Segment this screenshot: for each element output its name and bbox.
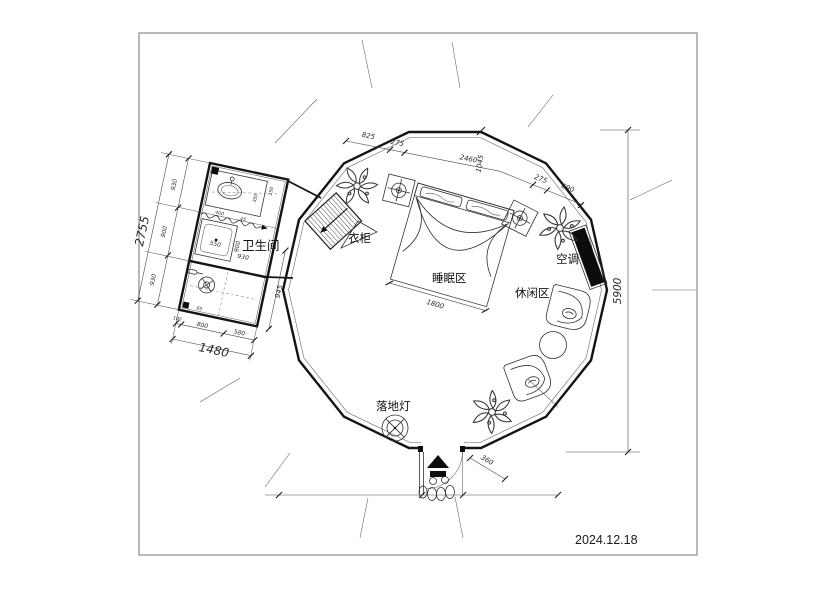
drawing-date: 2024.12.18	[575, 533, 638, 547]
floor-lamp-label: 落地灯	[376, 399, 411, 413]
sleeping-area-label: 睡眠区	[432, 271, 467, 285]
door-opening	[421, 440, 464, 453]
leisure-area-label: 休闲区	[515, 286, 550, 300]
bathroom-label: 卫生间	[242, 238, 280, 253]
entry-arrow-base	[430, 471, 446, 477]
door-post	[418, 446, 423, 452]
floor-plan-svg: 400 45 350 150 550 930 900 95 卫生间 衣柜	[0, 0, 837, 592]
floor-plan-page: 400 45 350 150 550 930 900 95 卫生间 衣柜	[0, 0, 837, 592]
floor-lamp-center	[394, 427, 396, 429]
dim-5900: 5900	[612, 277, 624, 304]
ac-label: 空调	[556, 252, 579, 266]
column-marker	[182, 302, 189, 309]
column-marker	[211, 167, 219, 175]
door-post	[460, 446, 465, 452]
wardrobe-label: 衣柜	[348, 231, 371, 245]
